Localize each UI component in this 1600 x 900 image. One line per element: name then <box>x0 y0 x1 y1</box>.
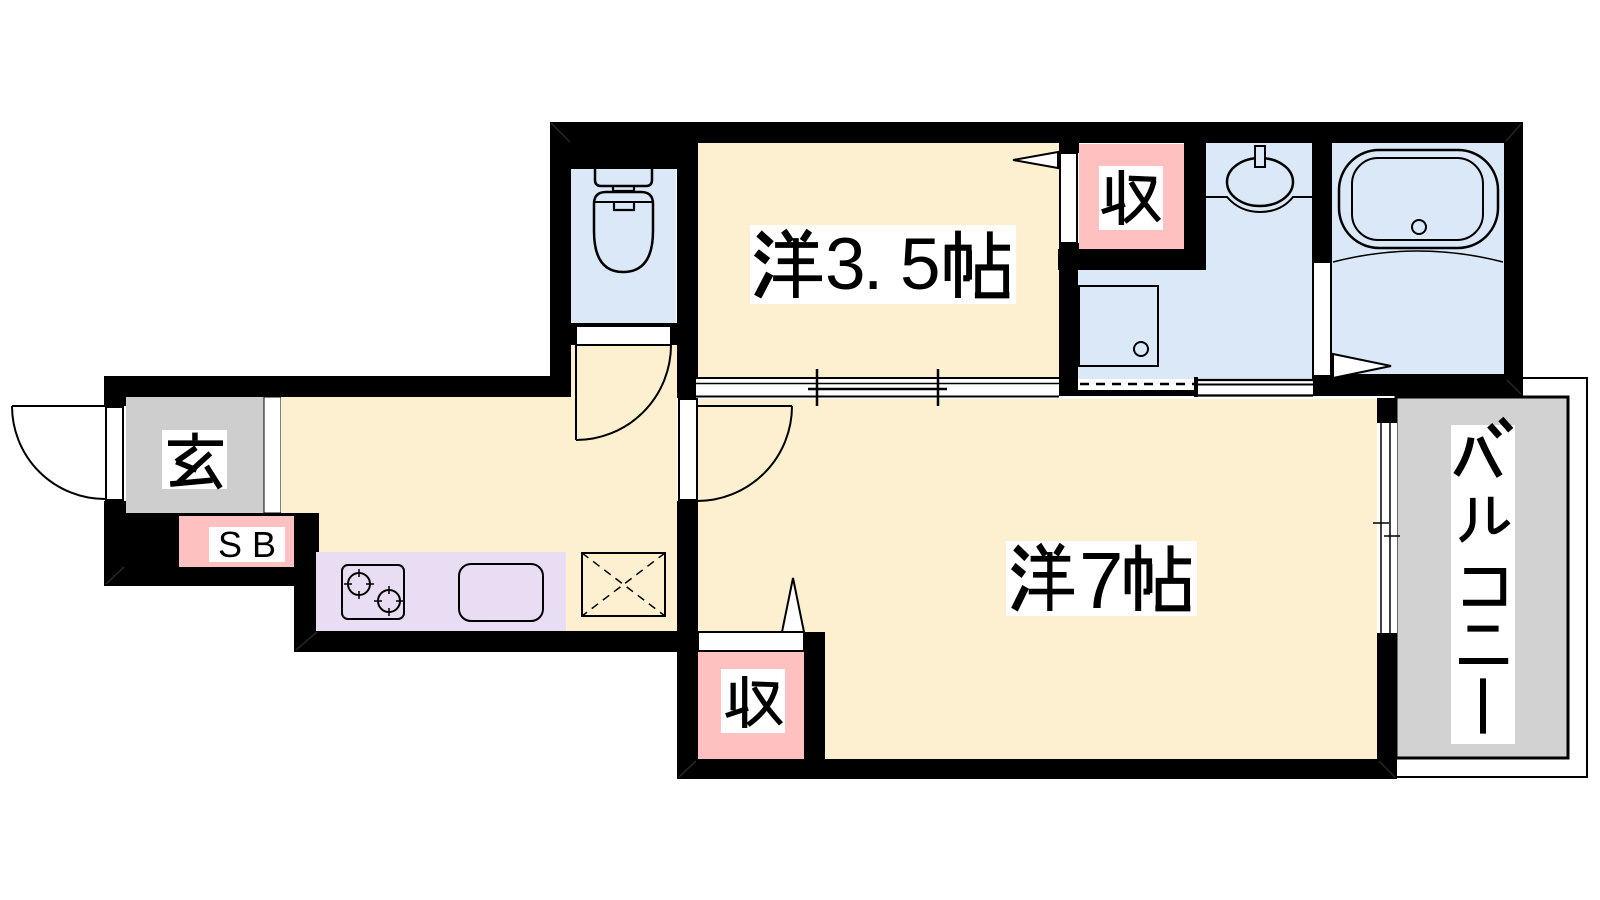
svg-text:SB: SB <box>218 524 286 565</box>
svg-text:7: 7 <box>1079 536 1124 625</box>
svg-text:3: 3 <box>825 224 866 305</box>
svg-text:5: 5 <box>900 224 941 305</box>
svg-text:.: . <box>863 224 883 305</box>
